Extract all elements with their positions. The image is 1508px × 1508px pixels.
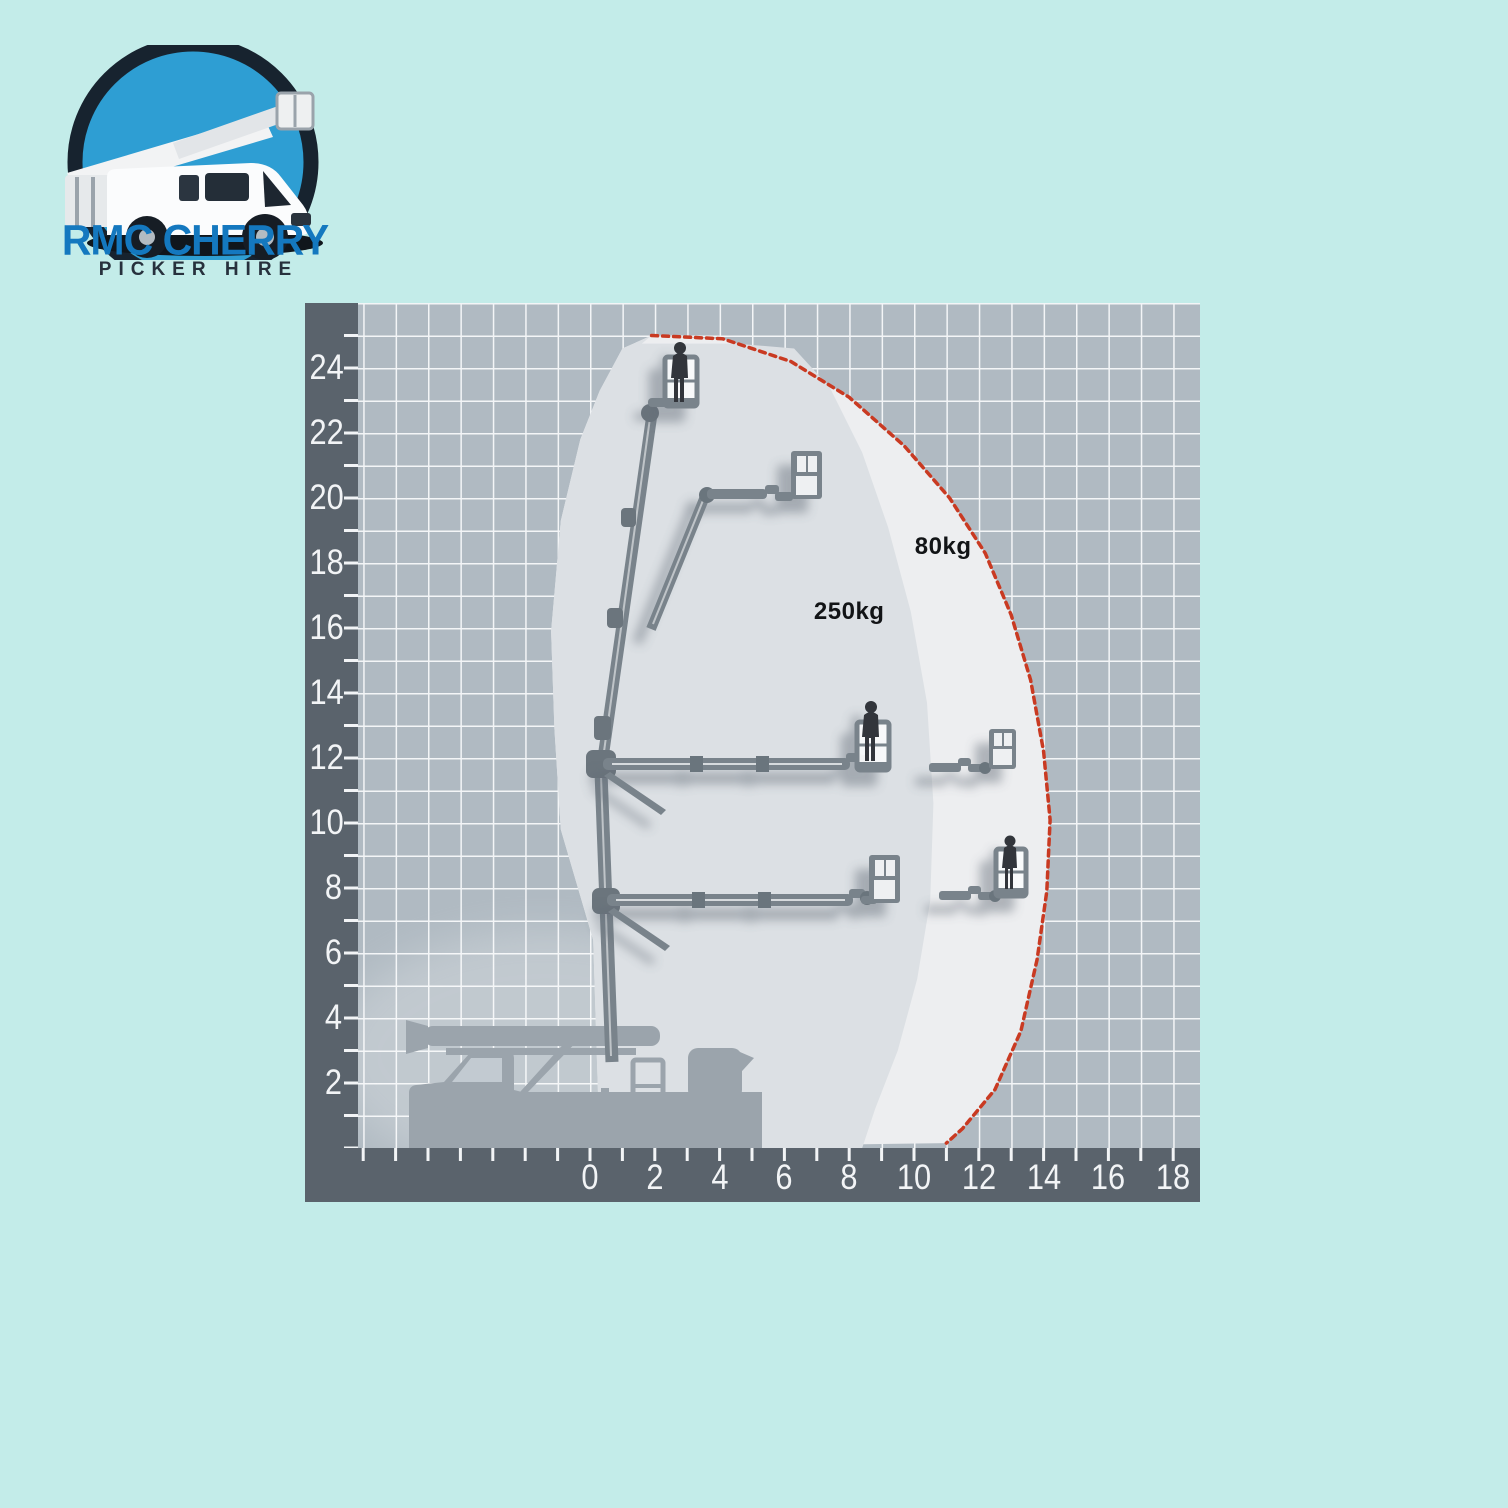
x-tick-label: 18 <box>1156 1160 1190 1196</box>
logo-title: RMC CHERRY <box>55 216 335 265</box>
basket <box>791 451 822 499</box>
x-tick-label: 0 <box>581 1160 598 1196</box>
y-tick-label: 16 <box>309 610 342 646</box>
y-tick-label: 8 <box>309 870 342 906</box>
envelope-diagram-canvas <box>305 303 1200 1202</box>
x-tick-label: 14 <box>1026 1160 1060 1196</box>
basket <box>989 729 1016 769</box>
y-tick-label: 6 <box>309 935 342 971</box>
load-label-250kg: 250kg <box>814 598 885 626</box>
page: { "page": { "bg_color": "#c3ece9" }, "lo… <box>0 0 1508 1508</box>
y-tick-label: 18 <box>309 545 342 581</box>
logo-subtitle: PICKER HIRE <box>55 259 335 281</box>
y-tick-label: 10 <box>309 805 342 841</box>
x-tick-label: 8 <box>841 1160 858 1196</box>
company-logo: RMC CHERRY PICKER HIRE <box>55 45 345 290</box>
y-tick-label: 2 <box>309 1065 342 1101</box>
y-tick-label: 12 <box>309 740 342 776</box>
x-tick-label: 16 <box>1091 1160 1125 1196</box>
x-tick-label: 12 <box>962 1160 996 1196</box>
y-tick-label: 14 <box>309 675 342 711</box>
x-tick-label: 6 <box>776 1160 793 1196</box>
working-envelope-chart: 24 22 20 18 16 14 12 10 8 6 4 2 0 2 4 6 … <box>305 303 1200 1202</box>
x-tick-label: 4 <box>711 1160 728 1196</box>
load-label-80kg: 80kg <box>915 533 972 561</box>
basket <box>869 855 900 903</box>
y-tick-label: 20 <box>309 480 342 516</box>
y-tick-label: 22 <box>309 415 342 451</box>
y-tick-label: 4 <box>309 1000 342 1036</box>
x-tick-label: 2 <box>646 1160 663 1196</box>
x-tick-label: 10 <box>897 1160 931 1196</box>
y-tick-label: 24 <box>309 350 342 386</box>
